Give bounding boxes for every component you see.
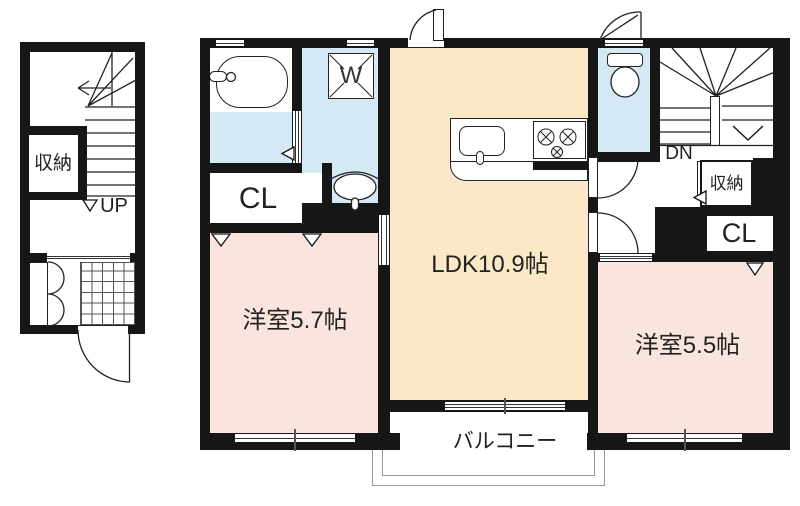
- room-ldk: [390, 48, 588, 400]
- bedroom-left-sliding-door: [379, 215, 389, 265]
- toilet-window-arc: [600, 12, 641, 40]
- entrance-door-arc: [78, 330, 130, 382]
- bathtub: [216, 56, 288, 108]
- wall: [20, 325, 78, 334]
- wall: [753, 158, 775, 208]
- wall: [655, 207, 775, 214]
- balcony-label: バルコニー: [425, 426, 585, 456]
- wall: [135, 42, 145, 334]
- wall: [655, 214, 705, 253]
- ldk-hall-door-arc: [598, 213, 638, 253]
- hall-opening-1f: [47, 254, 130, 261]
- bedroom-left-label: 洋室5.7帖: [215, 303, 375, 339]
- bathroom-sliding-door: [293, 111, 301, 163]
- up-label: UP: [94, 193, 134, 219]
- bedroom-right-sliding-door: [600, 254, 652, 261]
- toilet-tank: [607, 53, 643, 67]
- washing-machine-box: W: [328, 53, 374, 99]
- wall: [128, 325, 145, 334]
- toilet-door-leaf: [588, 157, 598, 198]
- kitchen-faucet: [476, 151, 484, 165]
- ldk-hall-door-leaf: [588, 212, 598, 253]
- wall: [130, 253, 145, 262]
- toilet-door-arc: [598, 158, 638, 198]
- wall-kitchen-stub: [533, 162, 588, 170]
- balcony-sliding-door: [445, 402, 565, 410]
- window: [347, 39, 374, 47]
- closet-left-label: CL: [220, 178, 296, 220]
- down-label: DN: [656, 141, 702, 165]
- stove: [533, 121, 586, 159]
- floor-plan: W 収納 UP C: [0, 0, 800, 506]
- wall-left: [200, 38, 210, 450]
- storage-1f-label: 収納: [27, 150, 79, 176]
- wall: [650, 48, 660, 152]
- wall-right: [773, 38, 790, 450]
- window-bedroom-right: [627, 433, 742, 443]
- entry-closet-door-arcs: [48, 262, 64, 326]
- stairs-2f-divider: [710, 96, 720, 146]
- wall: [200, 163, 302, 173]
- washer-label: W: [340, 64, 363, 88]
- window-bedroom-left: [235, 433, 355, 443]
- ldk-label: LDK10.9帖: [395, 246, 585, 284]
- wall: [598, 152, 660, 162]
- window: [605, 39, 643, 47]
- wall: [302, 203, 378, 233]
- entry-closet: [29, 262, 48, 326]
- entrance-tile: [80, 262, 140, 326]
- storage-2f-label: 収納: [701, 170, 752, 196]
- bedroom-right-label: 洋室5.5帖: [605, 328, 770, 364]
- window: [216, 39, 244, 47]
- wall-top: [200, 38, 790, 48]
- bathtub-faucet: [209, 71, 227, 82]
- ldk-entry-door-leaf: [433, 9, 444, 41]
- wall: [20, 253, 47, 262]
- entrance-door-opening: [78, 325, 128, 334]
- closet-right-label: CL: [708, 214, 770, 252]
- wall: [20, 42, 145, 52]
